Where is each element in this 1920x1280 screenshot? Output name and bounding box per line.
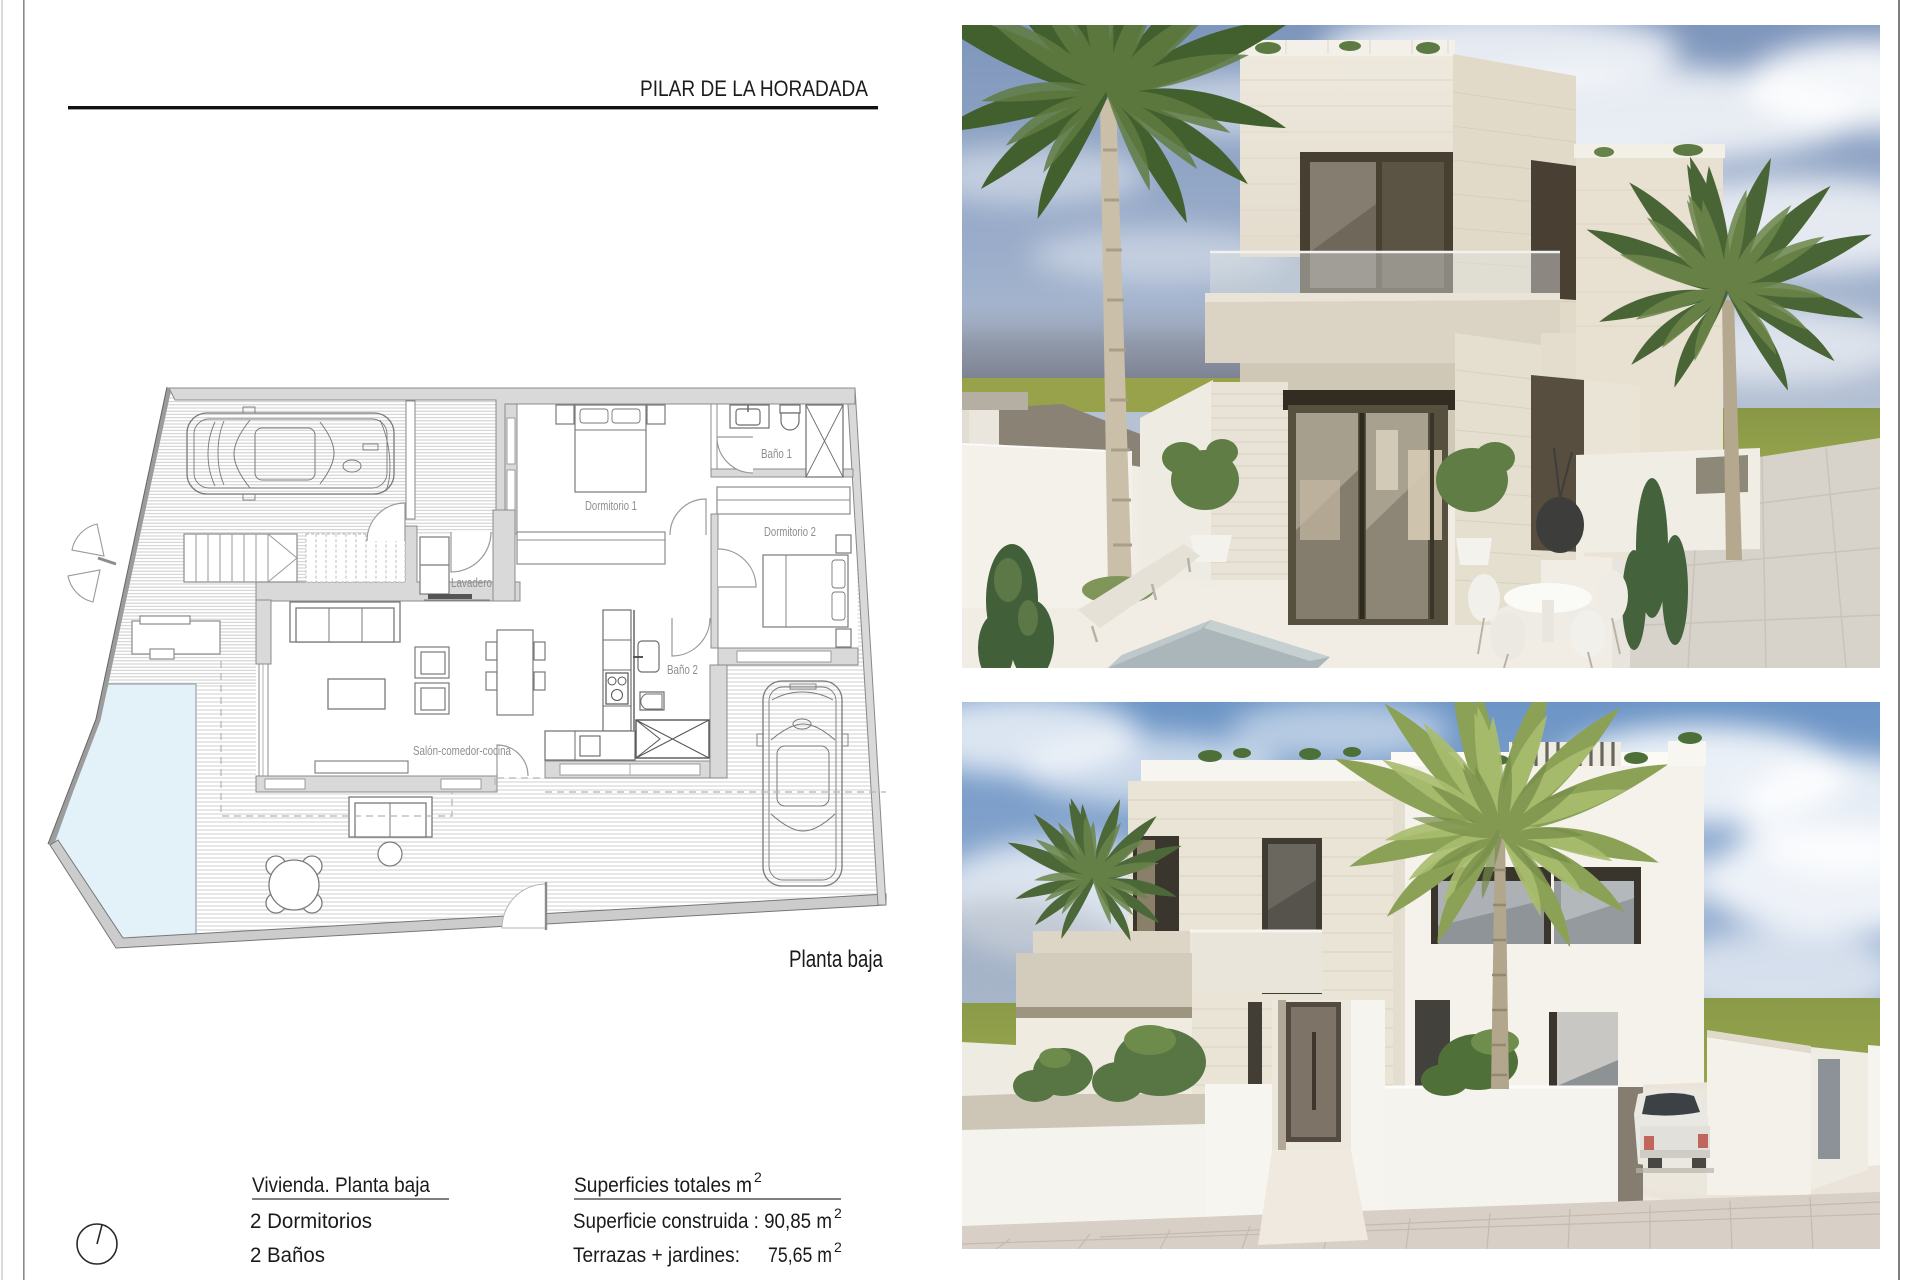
svg-text:PILAR DE LA HORADADA: PILAR DE LA HORADADA bbox=[640, 76, 868, 101]
svg-text:Vivienda. Planta baja: Vivienda. Planta baja bbox=[252, 1174, 430, 1197]
svg-text:Terrazas + jardines:: Terrazas + jardines: bbox=[573, 1244, 740, 1267]
svg-text:2: 2 bbox=[754, 1169, 762, 1185]
svg-text:Baño 2: Baño 2 bbox=[667, 663, 698, 677]
svg-text:Planta baja: Planta baja bbox=[789, 946, 884, 973]
svg-text:2: 2 bbox=[834, 1205, 842, 1221]
svg-text:2 Baños: 2 Baños bbox=[250, 1244, 325, 1267]
svg-text:Dormitorio 2: Dormitorio 2 bbox=[764, 525, 816, 539]
svg-text:75,65 m: 75,65 m bbox=[768, 1244, 832, 1267]
svg-text:Superficie construida : 90,85: Superficie construida : 90,85 m bbox=[573, 1210, 832, 1233]
svg-text:Lavadero: Lavadero bbox=[451, 576, 492, 590]
svg-text:Dormitorio 1: Dormitorio 1 bbox=[585, 499, 637, 513]
svg-text:2 Dormitorios: 2 Dormitorios bbox=[250, 1210, 372, 1233]
svg-text:Salón-comedor-cocina: Salón-comedor-cocina bbox=[413, 744, 511, 758]
svg-text:Superficies totales m: Superficies totales m bbox=[574, 1174, 752, 1197]
svg-text:2: 2 bbox=[834, 1239, 842, 1255]
svg-text:Baño 1: Baño 1 bbox=[761, 447, 792, 461]
